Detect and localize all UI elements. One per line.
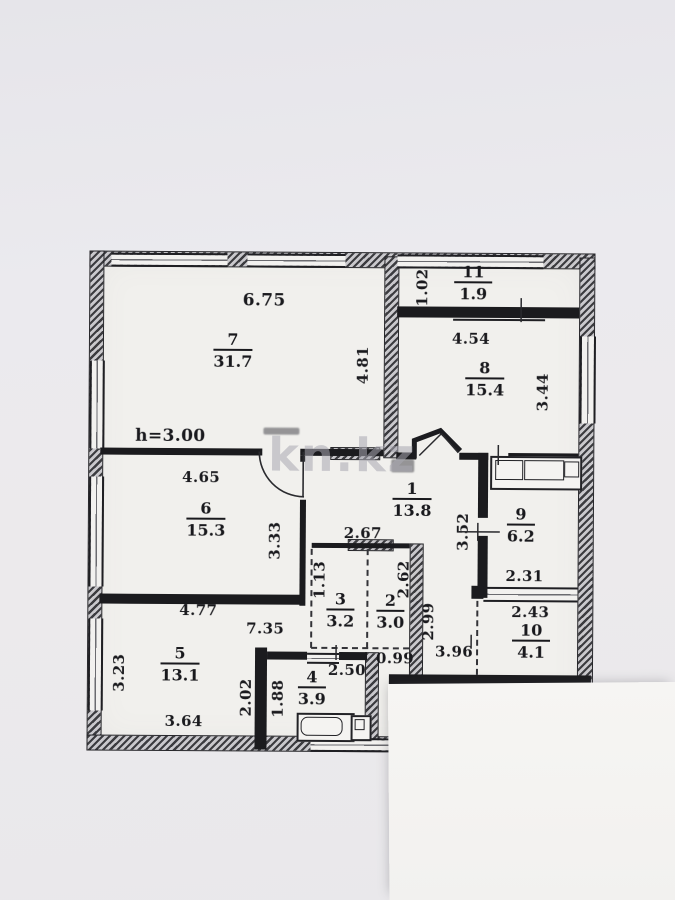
floor-plan-photo: 7 31.7 11 1.9 8 15.4 6 15.3 1 13.8 9 6.2…: [0, 0, 675, 900]
watermark: kn.kz: [268, 428, 417, 483]
paper-overlay: [388, 682, 675, 900]
tick-room9-door: [458, 523, 500, 541]
